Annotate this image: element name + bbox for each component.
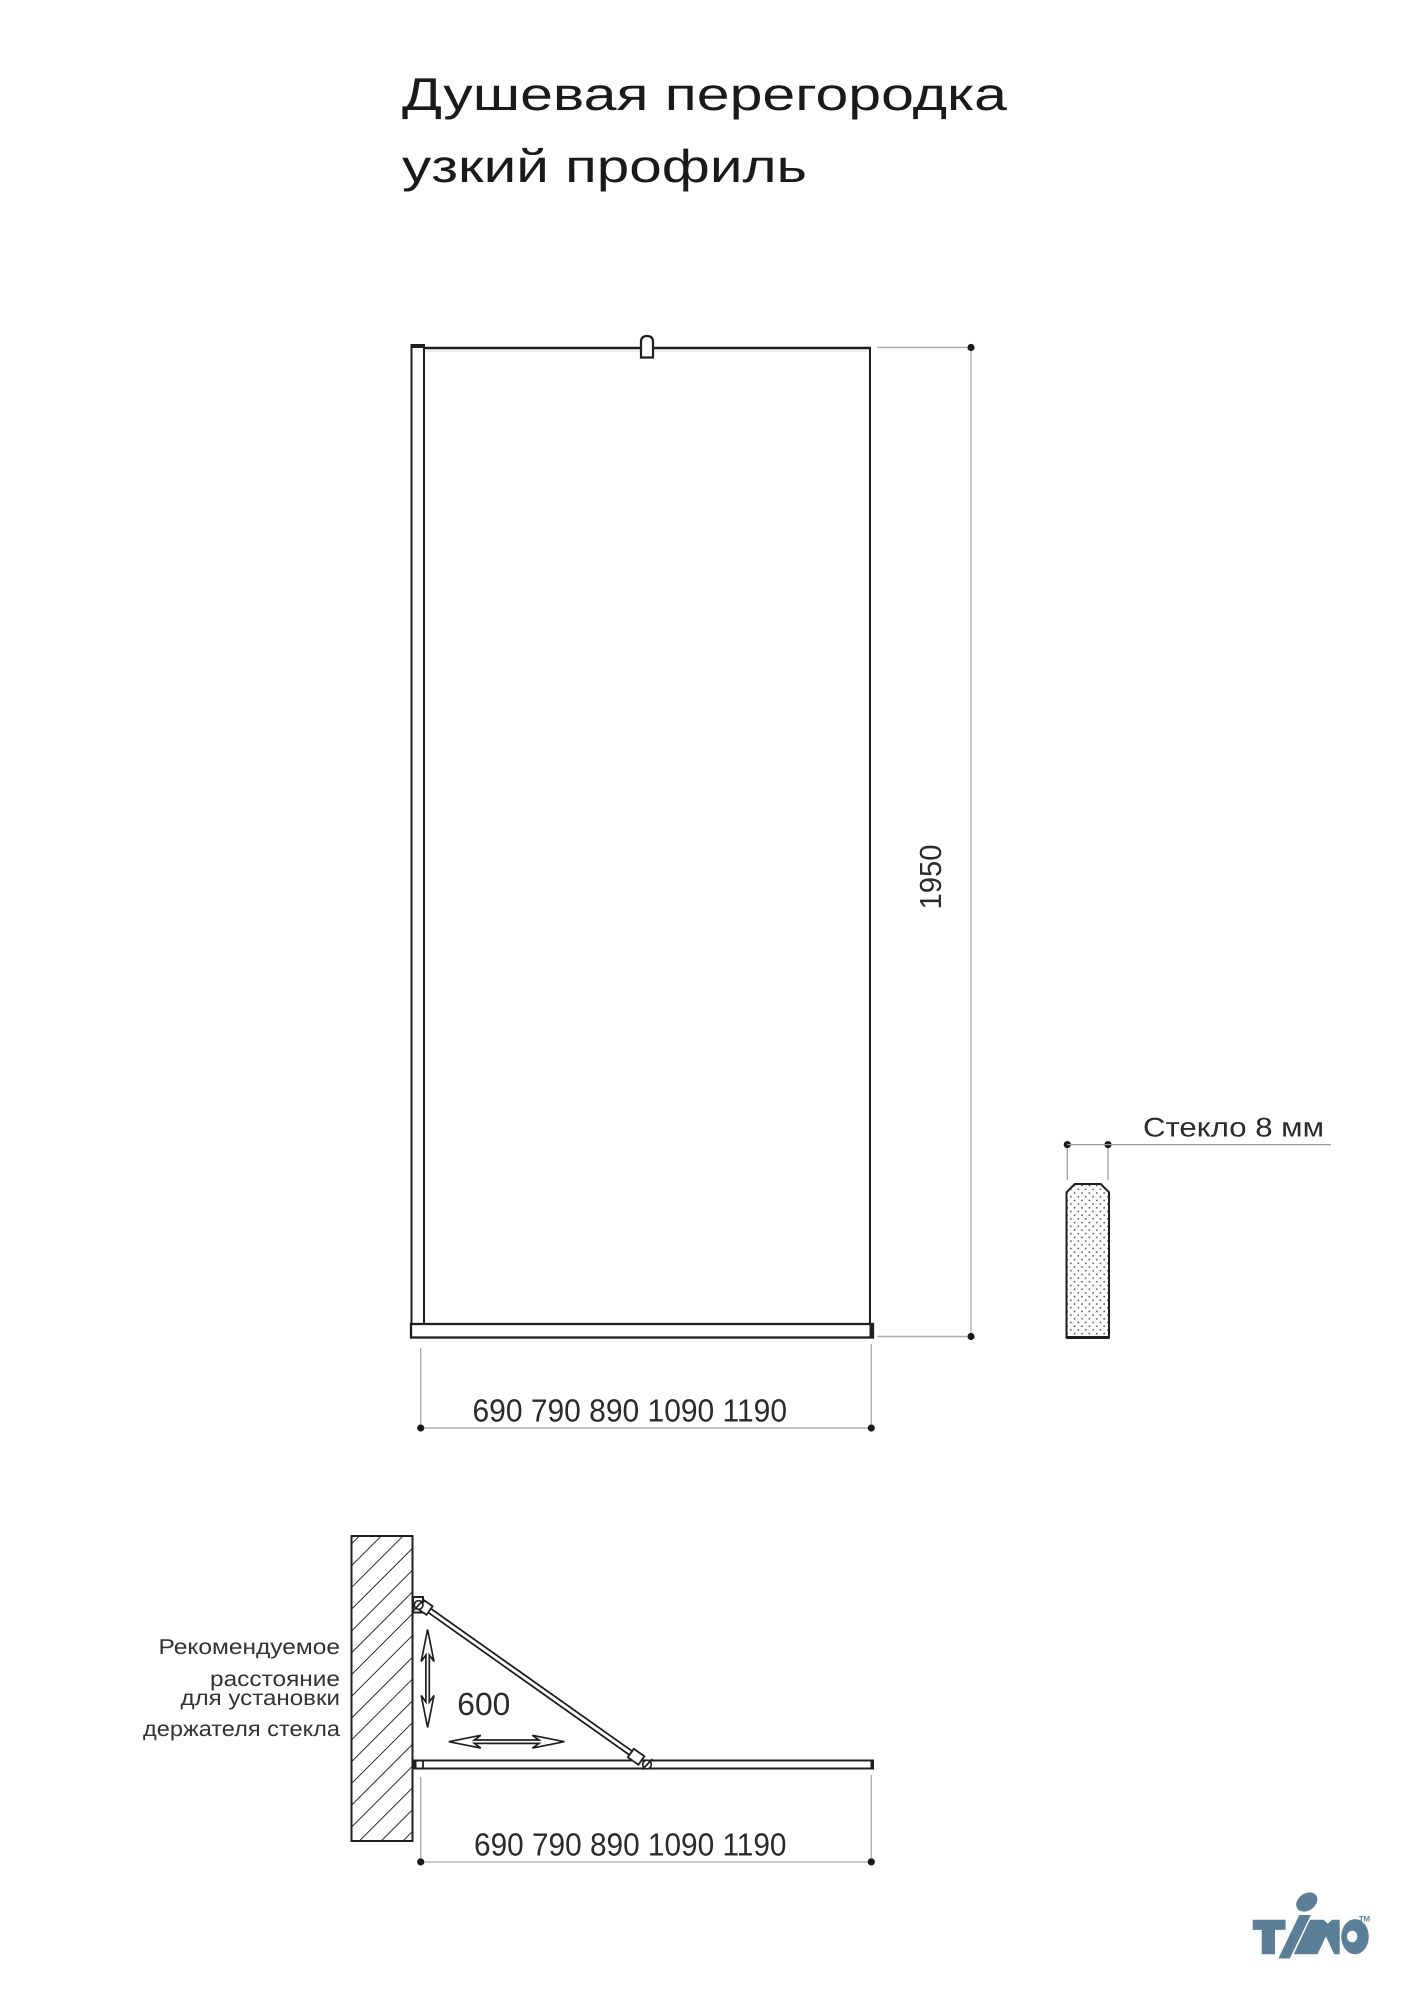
svg-text:держателя стекла: держателя стекла (143, 1717, 340, 1741)
svg-text:690 790 890 1090 1190: 690 790 890 1090 1190 (474, 1827, 787, 1863)
svg-text:Стекло 8 мм: Стекло 8 мм (1143, 1113, 1324, 1143)
svg-text:TM: TM (1359, 1914, 1371, 1923)
svg-text:Душевая перегородка: Душевая перегородка (402, 68, 1008, 120)
svg-text:1950: 1950 (914, 845, 948, 910)
svg-text:600: 600 (457, 1686, 510, 1722)
svg-text:для установки: для установки (181, 1686, 341, 1710)
svg-text:узкий профиль: узкий профиль (402, 140, 807, 192)
svg-text:690 790 890 1090 1190: 690 790 890 1090 1190 (473, 1393, 788, 1429)
svg-text:Рекомендуемое: Рекомендуемое (159, 1635, 341, 1659)
